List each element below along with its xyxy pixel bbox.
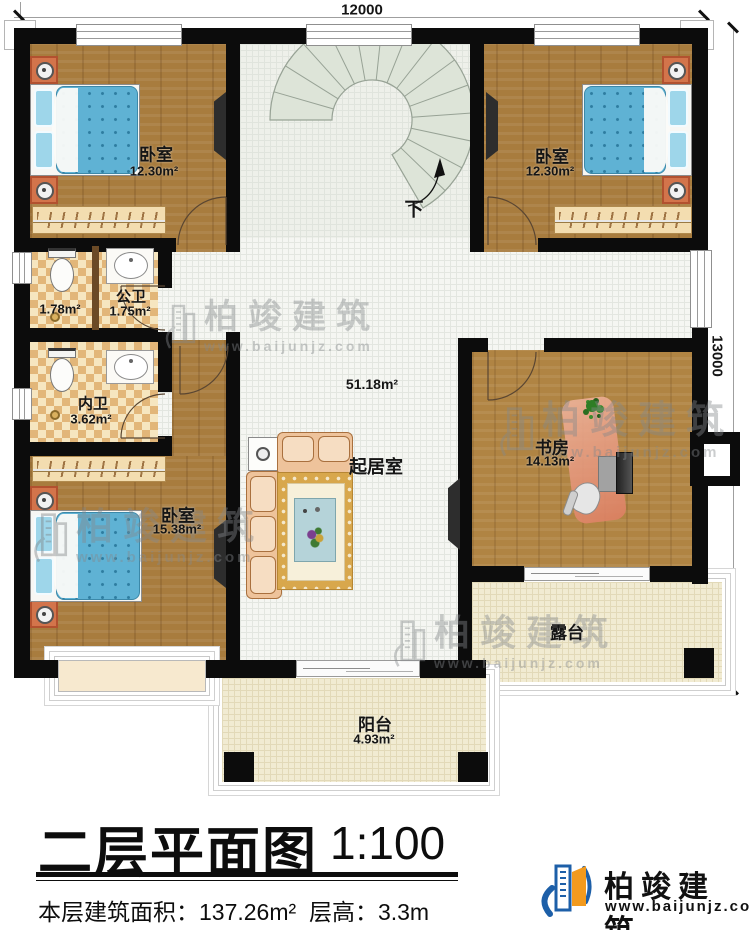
lamp-icon <box>36 182 54 200</box>
room-area: 51.18m² <box>346 376 398 392</box>
wall-bottom-right-of-door <box>420 660 486 678</box>
wall-bedroom-bl-right <box>226 332 240 678</box>
floor-info: 本层建筑面积：137.26m² 层高：3.3m <box>38 893 429 927</box>
room-area: 3.62m² <box>70 412 111 427</box>
sofa-cushion <box>250 476 276 512</box>
room-area: 1.78m² <box>39 302 80 317</box>
wardrobe <box>32 456 166 482</box>
wardrobe <box>554 206 692 234</box>
sliding-door-balcony <box>296 660 420 677</box>
wall-bath-hall2 <box>158 332 172 392</box>
wall-bottom-left <box>14 660 58 678</box>
nightstand <box>30 600 58 628</box>
room-area: 12.30m² <box>526 164 574 179</box>
wall-terrace-left <box>458 566 472 678</box>
lamp-icon <box>668 62 686 80</box>
wall-bedroom-tr-left <box>470 28 484 252</box>
height-value: 3.3m <box>378 899 429 925</box>
sofa-cushion <box>318 436 350 462</box>
lamp-icon <box>668 182 686 200</box>
spiral-staircase <box>240 44 470 238</box>
wall-bottom <box>206 660 296 678</box>
scale-label: 1:100 <box>330 816 445 870</box>
table-lamp-icon <box>256 447 270 461</box>
lamp-icon <box>36 62 54 80</box>
sofa-cushion <box>250 516 276 552</box>
nightstand <box>662 176 690 204</box>
room-name: 露台 <box>550 619 584 644</box>
dimension-line-right <box>733 28 734 692</box>
tv <box>214 520 226 588</box>
lamp-icon <box>36 492 54 510</box>
window-bedroom-tl <box>76 24 182 46</box>
brand-url: www.baijunjz.com <box>605 898 750 915</box>
window-bedroom-tr <box>534 24 640 46</box>
lamp-icon <box>36 606 54 624</box>
table-dot <box>303 509 307 513</box>
dimension-right-label: 13000 <box>709 335 726 377</box>
window-bath-private <box>12 388 32 420</box>
terrace-pillar <box>684 648 714 678</box>
plant-icon <box>586 400 598 412</box>
dimension-top-label: 12000 <box>341 2 383 19</box>
sink-basin <box>114 252 148 279</box>
computer-monitor <box>616 452 633 494</box>
title-underline-thin <box>36 880 458 881</box>
wall-study-bottom-right <box>650 566 708 582</box>
sofa-cushion <box>282 436 314 462</box>
floor-drain <box>50 410 60 420</box>
pillow <box>34 515 54 553</box>
pillow <box>668 89 688 127</box>
sink-basin <box>114 354 148 380</box>
room-name: 卧室 <box>139 141 173 166</box>
balcony-pillar <box>224 752 254 782</box>
pillow <box>668 131 688 169</box>
room-name: 内卫 <box>78 393 108 414</box>
wall-outer-left <box>14 28 30 678</box>
floor-plan-page: 12000 13000 <box>0 0 750 930</box>
pillow <box>34 557 54 595</box>
window-corridor-east <box>690 250 712 328</box>
toilet-bowl <box>50 258 74 292</box>
pillow <box>34 131 54 169</box>
room-name: 起居室 <box>349 453 403 479</box>
stairwell-floor <box>240 44 470 238</box>
stairs-down-label: 下 <box>404 195 423 222</box>
flue-niche-opening <box>704 444 730 476</box>
wall-study-left <box>458 338 472 566</box>
table-dot <box>315 507 320 512</box>
tv <box>448 478 460 550</box>
spacer <box>296 899 309 925</box>
toilet <box>48 248 76 258</box>
room-area: 4.93m² <box>353 732 394 747</box>
room-area: 1.75m² <box>109 304 150 319</box>
nightstand <box>30 56 58 84</box>
wall-bath-bl <box>30 442 172 456</box>
brand-name: 柏竣建筑 <box>604 862 750 930</box>
bed-sheet <box>644 88 670 172</box>
title-underline <box>36 872 458 877</box>
balcony-pillar <box>458 752 488 782</box>
nightstand <box>30 176 58 204</box>
wall-bath-hall <box>158 238 172 288</box>
room-area: 15.38m² <box>153 522 201 537</box>
nightstand <box>662 56 690 84</box>
tv <box>214 92 226 160</box>
brand-logo-icon <box>536 858 598 920</box>
flower-bouquet-icon <box>304 525 326 549</box>
side-table <box>248 437 278 471</box>
wall-study-top2 <box>544 338 692 352</box>
sliding-door-terrace <box>524 567 650 581</box>
toilet <box>48 348 76 358</box>
room-area: 12.30m² <box>130 164 178 179</box>
wall-bedroom-tr-bottom <box>538 238 692 252</box>
area-label: 本层建筑面积： <box>38 899 199 925</box>
bed-sheet <box>52 88 78 172</box>
bath-half-divider <box>92 246 99 330</box>
area-value: 137.26m² <box>199 899 296 925</box>
height-label: 层高： <box>309 899 378 925</box>
window-stairwell <box>306 24 412 46</box>
room-area: 14.13m² <box>526 454 574 469</box>
wardrobe <box>32 206 166 234</box>
coffee-table <box>294 498 336 562</box>
window-bath-public <box>12 252 32 284</box>
pillow <box>34 89 54 127</box>
bay-window-sill <box>58 660 206 692</box>
wall-bath-divider-h <box>30 328 158 342</box>
wall-bedroom-tl-right <box>226 28 240 252</box>
toilet-bowl <box>50 358 74 392</box>
balcony-floor <box>222 678 486 782</box>
bed-sheet <box>52 514 78 598</box>
tv <box>486 92 498 160</box>
sofa-cushion <box>250 556 276 594</box>
